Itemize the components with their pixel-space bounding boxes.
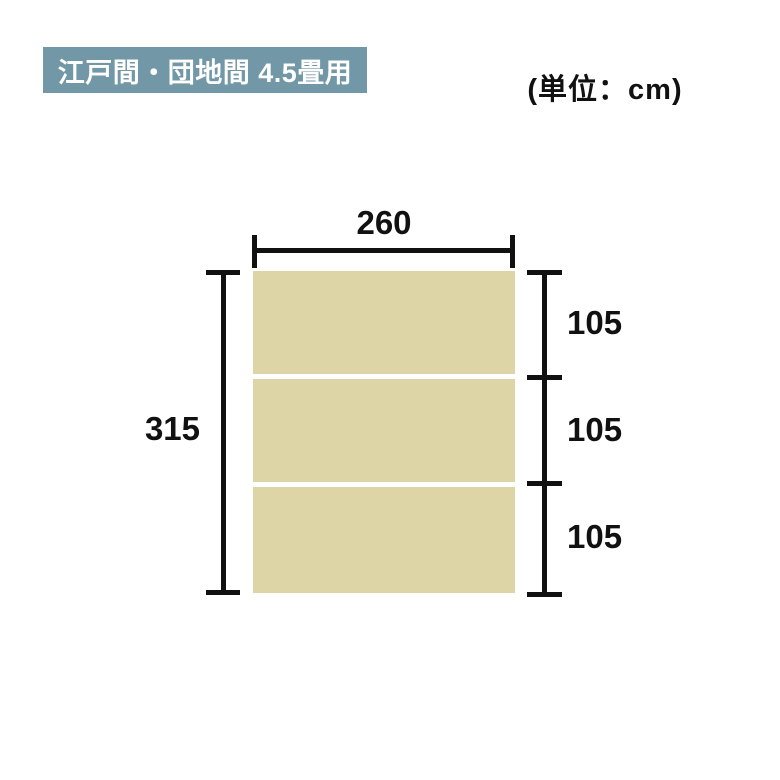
section-2-height-value: 105 <box>567 413 657 446</box>
section-3-height-value: 105 <box>567 520 657 553</box>
overall-width-value: 260 <box>324 206 444 239</box>
section-dim-tick-1 <box>527 270 562 275</box>
rug-panel-3 <box>253 487 515 593</box>
width-dim-tick-left <box>252 235 257 268</box>
section-1-height-value: 105 <box>567 306 657 339</box>
size-category-label: 江戸間・団地間 4.5畳用 <box>58 51 353 90</box>
height-dim-line <box>221 270 226 595</box>
unit-label: (単位：cm) <box>505 66 705 108</box>
rug-panel-2 <box>253 379 515 482</box>
section-dim-tick-2 <box>527 375 562 380</box>
height-dim-tick-top <box>206 270 240 275</box>
width-dim-line <box>252 248 515 253</box>
height-dim-tick-bottom <box>206 590 240 595</box>
size-diagram-canvas: 江戸間・団地間 4.5畳用 (単位：cm) 260 315 105 105 10… <box>0 0 780 780</box>
width-dim-tick-right <box>510 235 515 268</box>
section-dim-tick-3 <box>527 481 562 486</box>
size-category-badge: 江戸間・団地間 4.5畳用 <box>43 47 367 93</box>
rug-panel-1 <box>253 271 515 374</box>
section-dim-line <box>542 270 547 597</box>
section-dim-tick-4 <box>527 592 562 597</box>
overall-height-value: 315 <box>108 412 200 445</box>
